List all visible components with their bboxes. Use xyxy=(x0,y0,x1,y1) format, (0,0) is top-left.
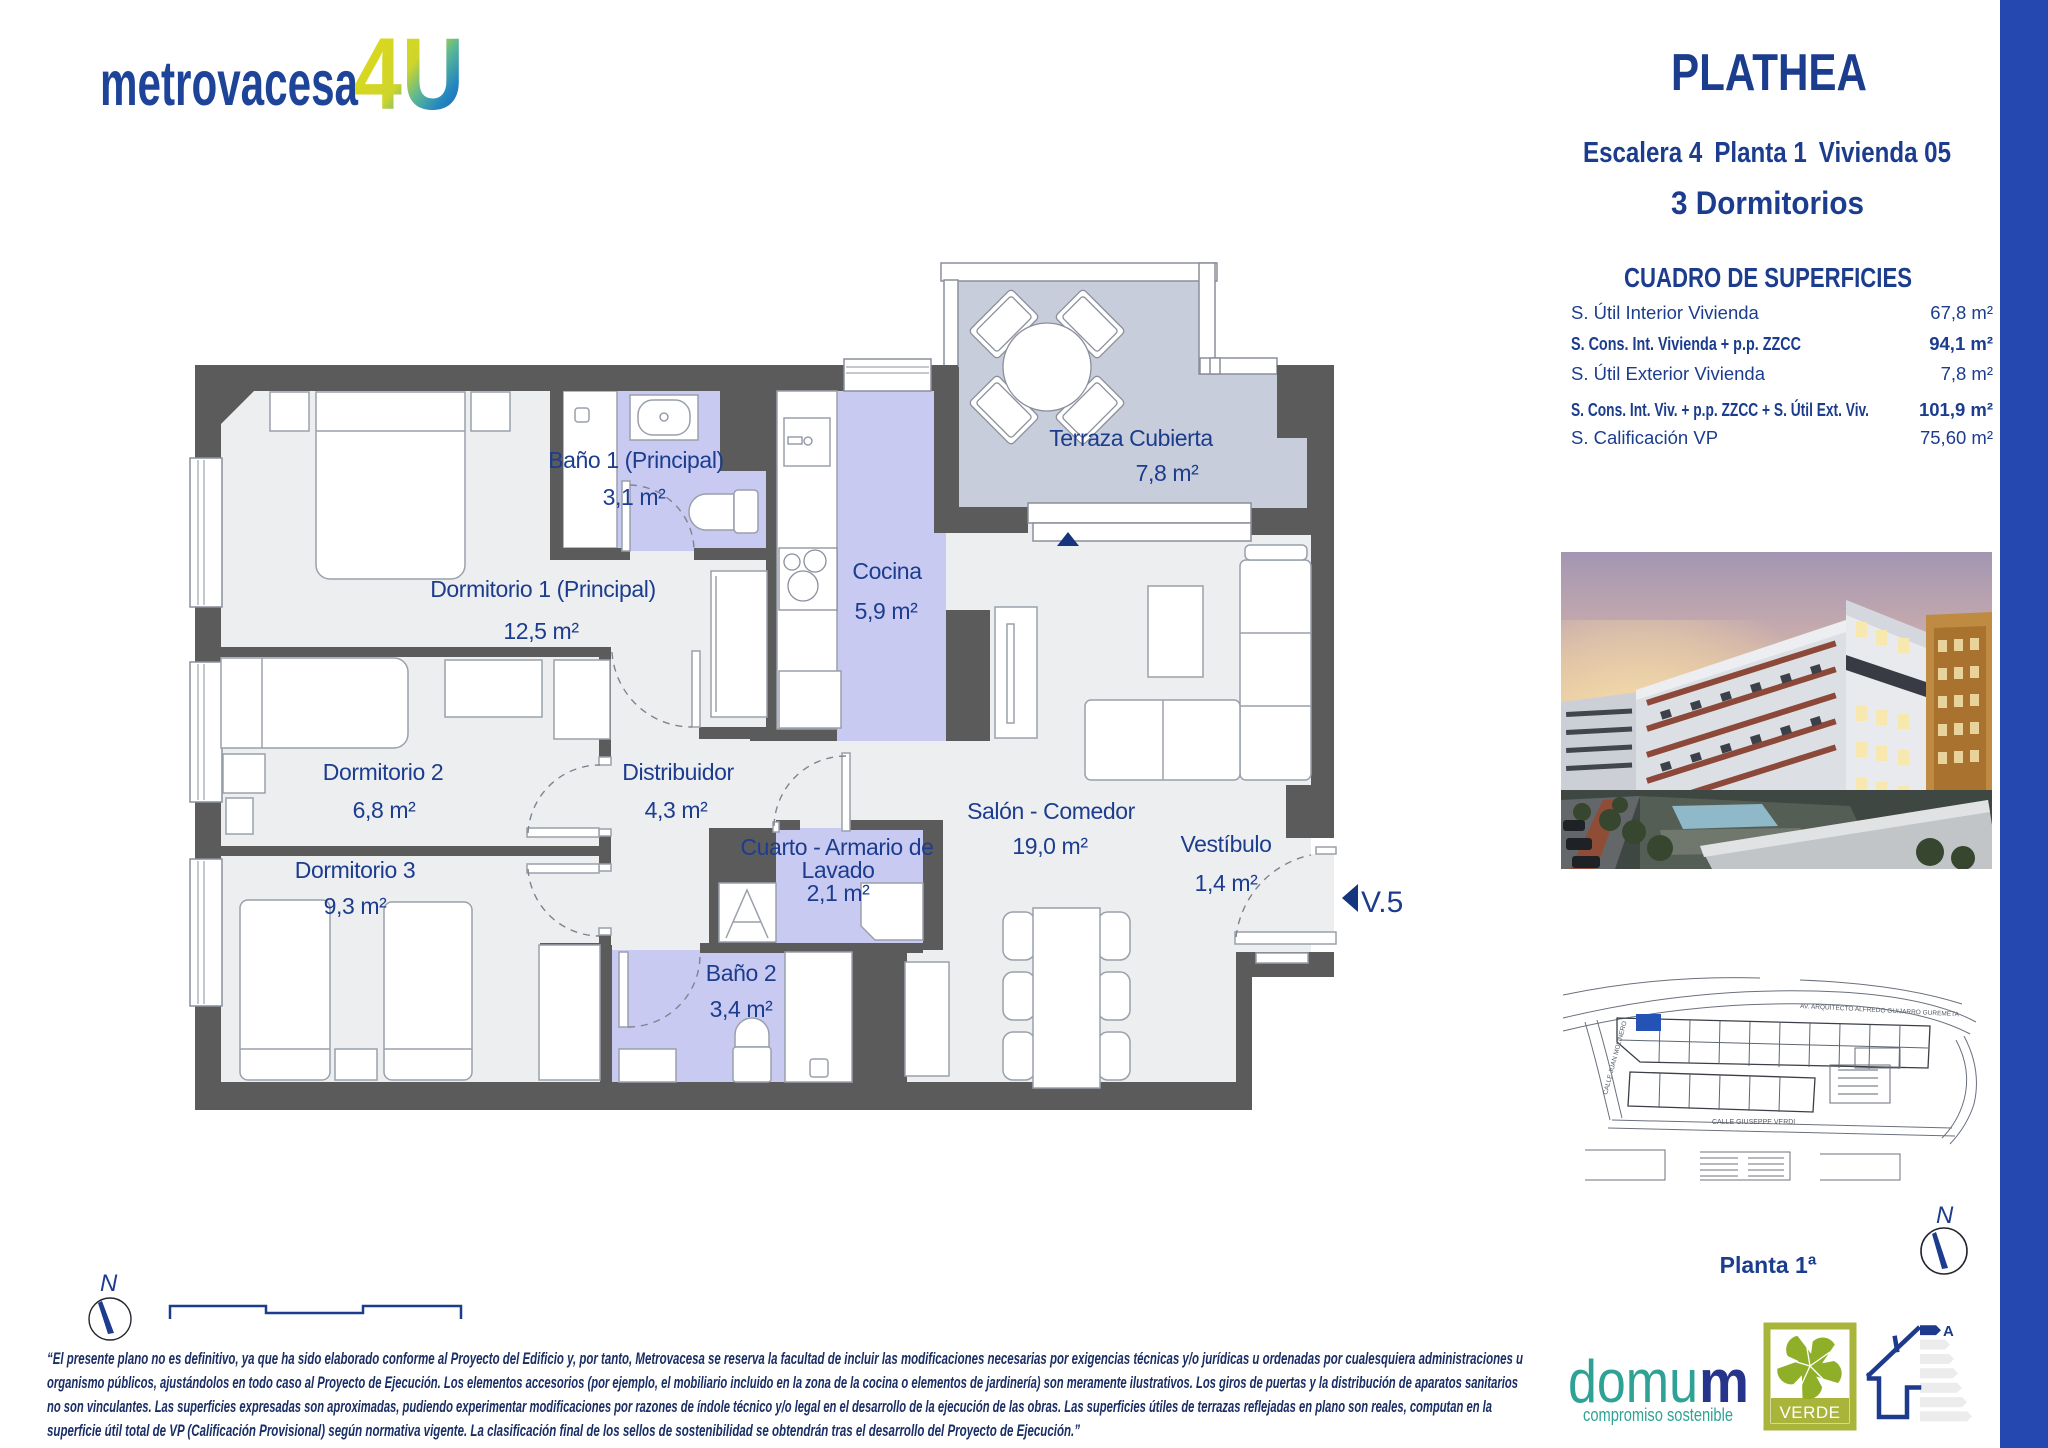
svg-text:Salón - Comedor: Salón - Comedor xyxy=(967,798,1136,824)
svg-text:CUADRO DE SUPERFICIES: CUADRO DE SUPERFICIES xyxy=(1624,262,1912,293)
svg-text:S. Útil Interior Vivienda: S. Útil Interior Vivienda xyxy=(1571,302,1760,323)
svg-text:Dormitorio 1 (Principal): Dormitorio 1 (Principal) xyxy=(430,576,656,602)
svg-text:7,8 m²: 7,8 m² xyxy=(1136,460,1200,486)
svg-text:1,4 m²: 1,4 m² xyxy=(1195,870,1259,896)
svg-text:N: N xyxy=(100,1270,118,1297)
svg-text:Dormitorio 2: Dormitorio 2 xyxy=(323,759,443,785)
svg-text:67,8 m²: 67,8 m² xyxy=(1930,302,1993,323)
svg-text:Distribuidor: Distribuidor xyxy=(622,759,734,785)
svg-text:19,0 m²: 19,0 m² xyxy=(1012,833,1088,859)
svg-text:AV. ARQUITECTO ALFREDO GUIJARR: AV. ARQUITECTO ALFREDO GUIJARRO GUREMETA xyxy=(1800,1003,1960,1018)
svg-text:Escalera 4 Planta 1 Vivienda 0: Escalera 4 Planta 1 Vivienda 05 xyxy=(1583,137,1951,169)
svg-text:VERDE: VERDE xyxy=(1779,1403,1840,1422)
svg-text:Terraza Cubierta: Terraza Cubierta xyxy=(1049,425,1213,451)
svg-text:6,8 m²: 6,8 m² xyxy=(353,797,417,823)
svg-text:3,4 m²: 3,4 m² xyxy=(710,996,774,1022)
svg-text:9,3 m²: 9,3 m² xyxy=(324,893,388,919)
svg-text:Planta 1ª: Planta 1ª xyxy=(1720,1252,1817,1278)
svg-text:101,9 m²: 101,9 m² xyxy=(1919,399,1993,420)
svg-text:S. Útil Exterior Vivienda: S. Útil Exterior Vivienda xyxy=(1571,363,1766,384)
svg-text:organismo públicos, ajustándol: organismo públicos, ajustándolos en todo… xyxy=(47,1374,1518,1392)
svg-text:Baño 2: Baño 2 xyxy=(706,960,777,986)
svg-text:metrovacesa: metrovacesa xyxy=(100,49,359,119)
svg-text:5,9 m²: 5,9 m² xyxy=(855,598,919,624)
svg-text:Cocina: Cocina xyxy=(852,558,922,584)
svg-text:3 Dormitorios: 3 Dormitorios xyxy=(1671,185,1864,221)
svg-text:N: N xyxy=(1936,1202,1954,1229)
svg-text:S. Cons. Int. Viv. + p.p. ZZCC: S. Cons. Int. Viv. + p.p. ZZCC + S. Útil… xyxy=(1571,399,1869,420)
svg-text:CALLE JUAN MOLINERO: CALLE JUAN MOLINERO xyxy=(1602,1020,1628,1095)
svg-text:S. Cons. Int. Vivienda + p.p.: S. Cons. Int. Vivienda + p.p. ZZCC xyxy=(1571,333,1801,354)
svg-text:75,60 m²: 75,60 m² xyxy=(1920,427,1993,448)
svg-text:2,1 m²: 2,1 m² xyxy=(807,880,871,906)
svg-text:S. Calificación VP: S. Calificación VP xyxy=(1571,427,1718,448)
svg-text:PLATHEA: PLATHEA xyxy=(1671,44,1867,102)
svg-text:no son vinculantes. Las superf: no son vinculantes. Las superficies expr… xyxy=(47,1398,1492,1416)
svg-text:superficie útil total de VP (C: superficie útil total de VP (Calificació… xyxy=(47,1422,1081,1440)
svg-text:Baño 1 (Principal): Baño 1 (Principal) xyxy=(548,447,724,473)
svg-text:7,8 m²: 7,8 m² xyxy=(1941,363,1993,384)
svg-text:Vestíbulo: Vestíbulo xyxy=(1180,831,1271,857)
svg-text:4U: 4U xyxy=(354,17,464,131)
svg-text:“El presente plano no es defin: “El presente plano no es definitivo, ya … xyxy=(47,1350,1523,1368)
svg-text:CALLE GIUSEPPE VERDI: CALLE GIUSEPPE VERDI xyxy=(1712,1119,1795,1126)
svg-text:V.5: V.5 xyxy=(1361,886,1403,919)
svg-text:12,5 m²: 12,5 m² xyxy=(503,618,579,644)
svg-text:94,1 m²: 94,1 m² xyxy=(1929,333,1993,354)
svg-text:3,1 m²: 3,1 m² xyxy=(603,484,667,510)
svg-text:4,3 m²: 4,3 m² xyxy=(645,797,709,823)
svg-text:compromiso sostenible: compromiso sostenible xyxy=(1583,1405,1733,1425)
svg-text:Dormitorio 3: Dormitorio 3 xyxy=(295,857,415,883)
svg-text:A: A xyxy=(1943,1323,1954,1340)
